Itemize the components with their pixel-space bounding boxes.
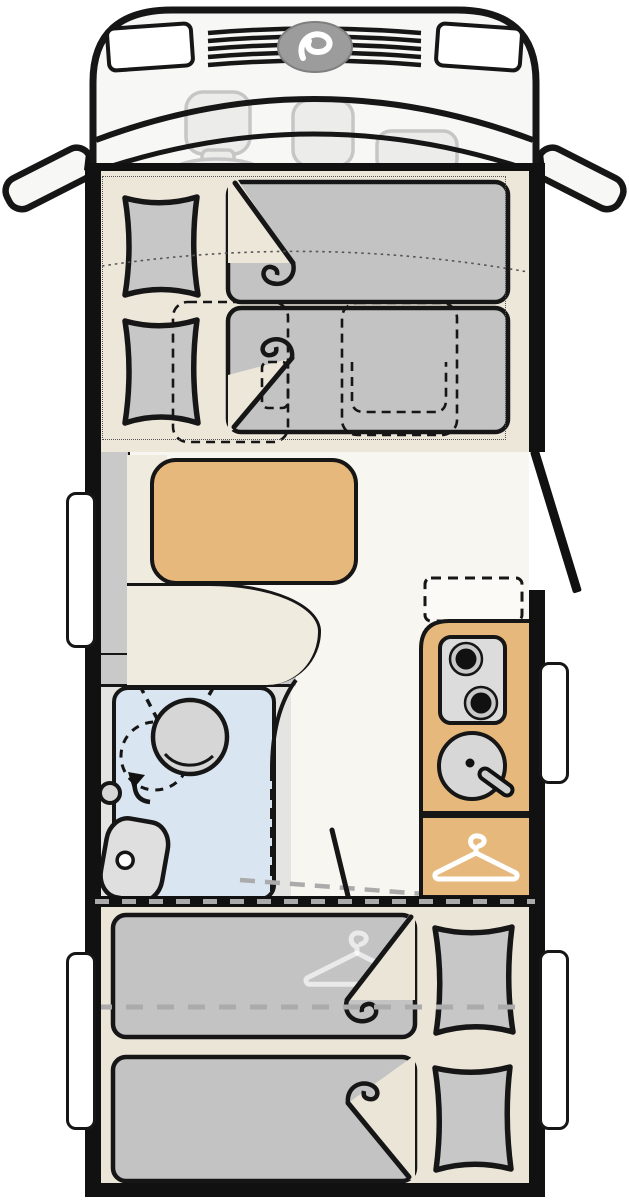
window-left-lounge [66, 492, 96, 648]
toilet [97, 815, 172, 905]
window-left-rear [66, 952, 96, 1130]
duvet [113, 915, 415, 1037]
sink-drain [466, 759, 475, 768]
right-wall-front [529, 166, 545, 452]
swivel-arrow-icon [128, 772, 150, 802]
wardrobe [421, 816, 531, 897]
duvet [113, 1055, 415, 1181]
holder-knob [100, 783, 120, 803]
pillow [435, 1067, 511, 1170]
washbasin [153, 700, 227, 774]
bathroom-fixtures [95, 672, 445, 904]
dinette-table [150, 458, 358, 585]
bathroom-door-swing-dashed [240, 880, 425, 894]
drop-down-bed-outline-dotted [102, 176, 506, 440]
front-bulkhead-wall [85, 163, 545, 171]
floorplan-canvas [0, 0, 629, 1200]
right-mirror-icon [531, 143, 628, 214]
window-right-kitchen [539, 662, 569, 784]
bench-seat-front [127, 583, 321, 685]
rear-wall [85, 1183, 545, 1197]
partition-sliding-dashes [95, 899, 535, 904]
flush-button-icon [116, 851, 135, 870]
window-right-rear [539, 950, 569, 1130]
left-headlight-icon [107, 23, 194, 71]
optional-unit-dashed [425, 578, 522, 621]
right-headlight-icon [436, 23, 523, 71]
shower-screen-line [272, 680, 296, 770]
pillow [435, 927, 513, 1033]
rear-beds [95, 905, 535, 1190]
brand-logo-icon [278, 22, 352, 72]
bench-backrest-left [101, 452, 130, 682]
left-mirror-icon [1, 143, 98, 214]
